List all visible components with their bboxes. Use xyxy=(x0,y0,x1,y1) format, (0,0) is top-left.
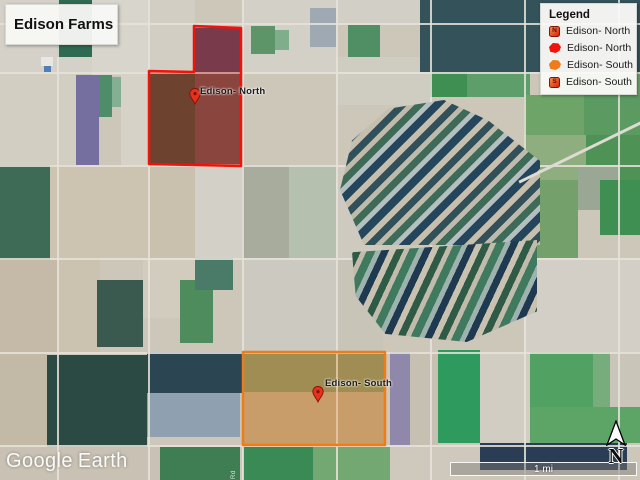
legend-item-label: Edison- North xyxy=(567,42,631,54)
north-indicator: N xyxy=(602,420,630,467)
badge-letter: N xyxy=(552,28,557,35)
placemark-label: Edison- North xyxy=(200,86,265,97)
legend-item-label: Edison- South xyxy=(567,59,633,71)
placemark-label: Edison- South xyxy=(325,378,392,389)
legend-item-north-pin: N Edison- North xyxy=(549,25,636,37)
edison-south-polygon[interactable] xyxy=(243,352,385,445)
scale-label: 1 mi xyxy=(534,464,553,475)
legend-item-south-polygon: Edison- South xyxy=(549,59,636,71)
north-arrow-icon xyxy=(604,420,628,446)
legend-panel: Legend N Edison- North Edison- North Edi… xyxy=(540,3,637,95)
placemark-north-icon: N xyxy=(549,26,560,37)
legend-item-north-polygon: Edison- North xyxy=(549,42,636,54)
polygon-red-icon xyxy=(549,43,561,53)
badge-letter: S xyxy=(552,79,556,86)
map-title-card: Edison Farms xyxy=(5,4,118,45)
north-label: N xyxy=(602,446,630,467)
watermark-earth: Earth xyxy=(78,450,128,472)
legend-item-south-pin: S Edison- South xyxy=(549,76,636,88)
watermark-google: Google xyxy=(6,450,73,472)
google-earth-viewport: Edison- NorthEdison- South Rd Edison Far… xyxy=(0,0,640,480)
legend-item-label: Edison- North xyxy=(566,25,630,37)
legend-item-label: Edison- South xyxy=(566,76,632,88)
polygon-orange-icon xyxy=(549,60,561,70)
placemark-south-icon: S xyxy=(549,77,560,88)
google-earth-watermark: GoogleEarth xyxy=(6,450,128,473)
map-title: Edison Farms xyxy=(14,16,113,33)
legend-title: Legend xyxy=(549,9,636,21)
